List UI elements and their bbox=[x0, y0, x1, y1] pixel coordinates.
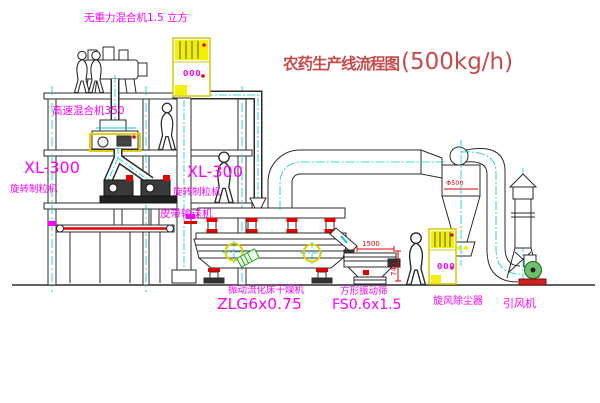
label-gravity-mixer: 无重力混合机1.5 立方 bbox=[84, 13, 188, 24]
label-high-speed-mixer: 高速混合机350 bbox=[52, 106, 125, 117]
dim-cyclone-diameter: Φ500 bbox=[446, 180, 464, 187]
control-cabinet-2 bbox=[429, 229, 456, 284]
dim-sieve-height: 740 bbox=[391, 263, 398, 276]
worker-floor2 bbox=[159, 103, 176, 149]
pesticide-line-flow-diagram: 农药生产线流程图 (500kg/h) 无重力混合机1.5 立方 高速混合机350… bbox=[0, 0, 600, 403]
high-speed-mixer bbox=[90, 120, 140, 151]
label-fan: 引风机 bbox=[503, 298, 536, 309]
label-granulator-right-model: XL-300 bbox=[187, 164, 243, 180]
label-granulator-right-name: 旋转制粒机 bbox=[173, 188, 221, 198]
label-granulator-left-model: XL-300 bbox=[24, 160, 80, 176]
label-sieve-model: FS0.6x1.5 bbox=[332, 298, 402, 312]
label-dryer-model: ZLG6x0.75 bbox=[217, 297, 302, 313]
exhaust-duct bbox=[268, 150, 446, 210]
bucket-elevator bbox=[172, 88, 196, 283]
dim-sieve-length: 1500 bbox=[362, 241, 380, 248]
worker-sieve bbox=[407, 233, 426, 285]
title-capacity: (500kg/h) bbox=[401, 49, 513, 75]
belt-conveyor bbox=[48, 221, 174, 283]
label-sieve-name: 方形振动筛 bbox=[340, 287, 388, 297]
diagram-title: 农药生产线流程图 (500kg/h) bbox=[283, 49, 513, 75]
cabinet2-display: 000 bbox=[437, 263, 456, 271]
label-cyclone: 旋风除尘器 bbox=[433, 297, 483, 307]
label-granulator-left-name: 旋转制粒机 bbox=[10, 185, 58, 195]
control-cabinet-1 bbox=[173, 38, 210, 96]
label-belt-conveyor: 皮带输送机 bbox=[160, 209, 213, 220]
cabinet1-display: 000 bbox=[183, 70, 202, 78]
granulator-discharge bbox=[114, 209, 159, 225]
worker-roof-1 bbox=[75, 51, 90, 92]
title-text: 农药生产线流程图 bbox=[283, 52, 399, 74]
